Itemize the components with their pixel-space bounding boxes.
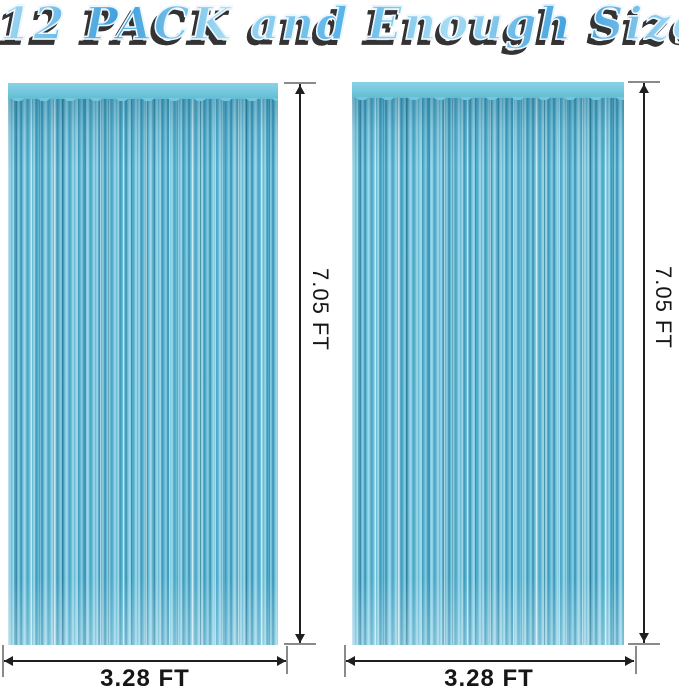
product-image: 12 PACK and Enough Size 7.05 FT 7.05 FT … (0, 0, 679, 687)
width-dimension-line (4, 660, 286, 662)
curtain-panel-right (352, 82, 624, 645)
arrow-up-icon (295, 85, 305, 94)
curtain-fringe (352, 97, 624, 645)
curtain-rod-pocket (8, 83, 278, 99)
curtain-panel-left (8, 83, 278, 645)
arrow-left-icon (346, 656, 355, 666)
dimension-cap (628, 643, 660, 645)
height-label-right: 7.05 FT (650, 266, 676, 349)
arrow-right-icon (277, 656, 286, 666)
width-label-right: 3.28 FT (404, 665, 574, 687)
curtain-rod-pocket (352, 82, 624, 98)
arrow-down-icon (295, 634, 305, 643)
arrow-up-icon (639, 84, 649, 93)
product-title: 12 PACK and Enough Size (0, 0, 679, 54)
width-label-left: 3.28 FT (60, 665, 230, 687)
width-dimension-line (346, 660, 634, 662)
curtain-fringe (8, 98, 278, 645)
extension-line (286, 646, 288, 674)
arrow-down-icon (639, 633, 649, 642)
height-label-left: 7.05 FT (307, 268, 333, 351)
height-dimension-line (299, 84, 301, 644)
arrow-left-icon (4, 656, 13, 666)
arrow-right-icon (625, 656, 634, 666)
height-dimension-line (643, 83, 645, 643)
dimension-cap (284, 643, 316, 645)
extension-line (635, 646, 637, 674)
